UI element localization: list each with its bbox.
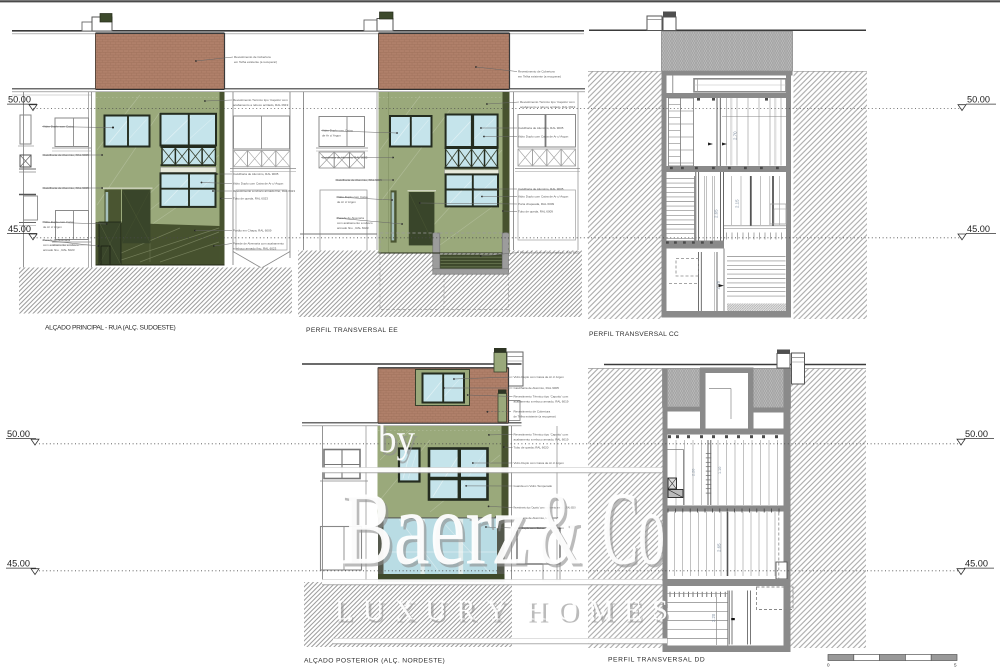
svg-text:45.00: 45.00	[967, 224, 990, 234]
svg-text:L U X U R Y H O M E S: L U X U R Y H O M E S	[335, 596, 668, 627]
svg-text:1.10: 1.10	[718, 467, 722, 474]
svg-text:de Telha existente (a recupera: de Telha existente (a recuperar)	[514, 414, 556, 418]
svg-text:Vidro Duplo com Caixa: Vidro Duplo com Caixa	[43, 220, 74, 224]
svg-text:Porta chapeada, RAL 6009: Porta chapeada, RAL 6009	[518, 202, 554, 206]
svg-text:Revestimento Térmico tipo ‘Cap: Revestimento Térmico tipo ‘Capotto’ com	[520, 100, 575, 104]
svg-text:2.20: 2.20	[692, 469, 696, 476]
svg-text:2.70: 2.70	[733, 131, 738, 140]
svg-text:45.00: 45.00	[965, 559, 988, 569]
svg-text:Revestimento de Cobertura: Revestimento de Cobertura	[514, 410, 551, 414]
svg-text:2.65: 2.65	[714, 209, 719, 218]
svg-text:Vidro Duplo com Caixa de Ar c/: Vidro Duplo com Caixa de Ar c/ Argon	[233, 182, 284, 186]
svg-text:Vidro Duplo com Caixa de Ar c/: Vidro Duplo com Caixa de Ar c/ Argon	[514, 461, 565, 465]
svg-text:armado fino , RAL 6023: armado fino , RAL 6023	[337, 226, 369, 230]
svg-text:Tubo de queda; RAL 6020: Tubo de queda; RAL 6020	[514, 446, 549, 450]
svg-text:acabamento a reboco armado, RA: acabamento a reboco armado, RAL 6019	[514, 437, 569, 441]
svg-text:acabamento a reboco acrilado,: acabamento a reboco acrilado, RAL 0919	[233, 103, 289, 107]
svg-text:Revestimento Térmico tipo ‘Cap: Revestimento Térmico tipo ‘Capotto’ com	[514, 395, 569, 399]
svg-text:Baerz: Baerz	[340, 470, 528, 587]
svg-text:2.65: 2.65	[717, 543, 722, 552]
svg-text:50.00: 50.00	[965, 429, 988, 439]
svg-text:Caixilharia de Alumínio, RAL 9: Caixilharia de Alumínio, RAL 9005	[233, 172, 279, 176]
svg-text:2.15: 2.15	[735, 199, 740, 208]
svg-text:de Ar c/ Argon: de Ar c/ Argon	[43, 225, 62, 229]
svg-text:0: 0	[827, 663, 830, 668]
svg-text:ALÇADO POSTERIOR (ALÇ. NORDEST: ALÇADO POSTERIOR (ALÇ. NORDESTE)	[304, 658, 445, 665]
svg-text:&: &	[538, 470, 581, 587]
svg-text:PERFIL TRANSVERSAL EE: PERFIL TRANSVERSAL EE	[306, 327, 398, 334]
svg-text:em Telha existente (a recupera: em Telha existente (a recuperar)	[518, 74, 561, 78]
svg-text:Revestimento Térmico tipo ‘Cap: Revestimento Térmico tipo ‘Capotto’ com	[233, 98, 288, 102]
svg-text:PERFIL TRANSVERSAL DD: PERFIL TRANSVERSAL DD	[608, 657, 705, 664]
svg-text:Vidro Duplo com Caixa: Vidro Duplo com Caixa	[322, 129, 353, 133]
svg-text:Painéis Envolvente Automatizad: Painéis Envolvente Automatizado, RAL 602…	[520, 251, 580, 255]
svg-text:acabamento a reboco armado, RA: acabamento a reboco armado, RAL 6019	[514, 399, 569, 403]
svg-text:Caixilharia de Alumínio, RAL 9: Caixilharia de Alumínio, RAL 9005	[336, 178, 382, 182]
svg-text:Tubo de queda, RAL 6009: Tubo de queda, RAL 6009	[518, 210, 553, 214]
svg-text:50.00: 50.00	[7, 429, 30, 439]
svg-text:de Ar c/ Argon: de Ar c/ Argon	[322, 133, 341, 137]
svg-text:com acabamento a reboco: com acabamento a reboco	[43, 243, 79, 247]
svg-text:Revestimento Térmico tipo ‘Cap: Revestimento Térmico tipo ‘Capotto’ com	[514, 433, 569, 437]
svg-text:em Telha existente (a recupera: em Telha existente (a recuperar)	[234, 60, 277, 64]
svg-text:Vidro Duplo com Caixa: Vidro Duplo com Caixa	[337, 195, 368, 199]
svg-text:45.00: 45.00	[7, 559, 30, 569]
svg-text:Vidro Duplo com Caixa de Ar c/: Vidro Duplo com Caixa de Ar c/ Argon	[518, 195, 569, 199]
svg-text:armado fino , RAL 6023: armado fino , RAL 6023	[43, 248, 75, 252]
svg-text:com acabamento a reboco: com acabamento a reboco	[337, 221, 373, 225]
svg-text:Vidro Duplo com Caixa: Vidro Duplo com Caixa	[43, 125, 74, 129]
svg-text:ALÇADO PRINCIPAL - RUA (ALÇ. S: ALÇADO PRINCIPAL - RUA (ALÇ. SUDOESTE)	[45, 325, 176, 332]
svg-text:Co: Co	[602, 470, 665, 587]
svg-text:2.20: 2.20	[711, 613, 716, 622]
svg-text:Portão em Chapa, RAL 6009: Portão em Chapa, RAL 6009	[233, 229, 272, 233]
svg-text:a reboco armado fino, RAL 6023: a reboco armado fino, RAL 6023	[233, 246, 277, 250]
svg-text:5: 5	[954, 663, 957, 668]
svg-text:50.00: 50.00	[8, 95, 31, 105]
svg-text:Vidro Duplo com Caixa de Ar c/: Vidro Duplo com Caixa de Ar c/ Argon	[518, 135, 569, 139]
svg-text:Caixilharia de Alumínio, RAL 9: Caixilharia de Alumínio, RAL 9005	[43, 186, 89, 190]
svg-text:Caixilharia de Alumínio, RAL 9: Caixilharia de Alumínio, RAL 9005	[322, 156, 368, 160]
svg-text:Parede de Alvenaria com acabam: Parede de Alvenaria com acabamento	[233, 242, 284, 246]
svg-text:acabamento a reboco acrilado,: acabamento a reboco acrilado, RAL 0919	[520, 105, 576, 109]
svg-text:Vidro Duplo com Caixa de Ar c/: Vidro Duplo com Caixa de Ar c/ Argon	[514, 375, 565, 379]
svg-text:45.00: 45.00	[8, 224, 31, 234]
svg-text:Revestimento a reboco armado f: Revestimento a reboco armado fino, RAL 6…	[233, 189, 295, 193]
svg-text:50.00: 50.00	[967, 95, 990, 105]
svg-text:by: by	[378, 416, 415, 461]
svg-text:Parede de Alvenaria: Parede de Alvenaria	[43, 238, 70, 242]
svg-text:Revestimento de Cobertura: Revestimento de Cobertura	[518, 70, 555, 74]
svg-text:Parede de Alvenaria: Parede de Alvenaria	[337, 216, 364, 220]
svg-text:Caixilharia de Alumínio, RAL 9: Caixilharia de Alumínio, RAL 9005	[518, 187, 564, 191]
svg-text:Caixilharia de Alumínio, RAL 9: Caixilharia de Alumínio, RAL 9005	[514, 386, 560, 390]
svg-text:Caixilharia de Alumínio, RAL 9: Caixilharia de Alumínio, RAL 9005	[518, 126, 564, 130]
svg-text:Caixilharia de Alumínio, RAL 9: Caixilharia de Alumínio, RAL 9005	[43, 153, 89, 157]
svg-text:PERFIL TRANSVERSAL CC: PERFIL TRANSVERSAL CC	[589, 331, 679, 338]
svg-text:Revestimento de Cobertura: Revestimento de Cobertura	[234, 55, 271, 59]
svg-text:de Ar c/ Argon: de Ar c/ Argon	[337, 200, 356, 204]
svg-text:Tubo de queda, RAL 6023: Tubo de queda, RAL 6023	[233, 197, 268, 201]
